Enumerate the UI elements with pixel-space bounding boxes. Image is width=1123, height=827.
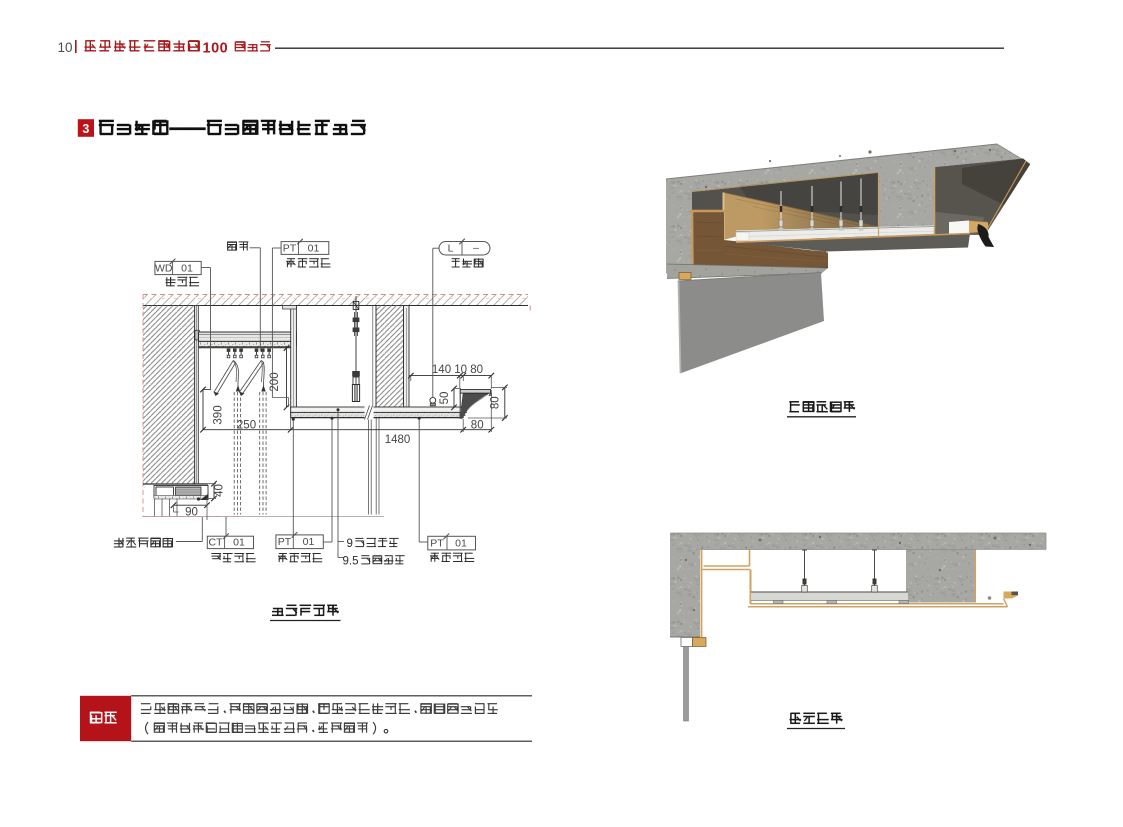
svg-text:CT: CT	[209, 537, 224, 549]
svg-text:250: 250	[237, 419, 256, 431]
svg-text:50: 50	[439, 392, 451, 405]
svg-text:PT: PT	[430, 538, 444, 550]
svg-text:01: 01	[303, 536, 315, 548]
svg-text:80: 80	[489, 396, 501, 409]
svg-text:140 10 80: 140 10 80	[432, 364, 483, 376]
svg-text:PT: PT	[278, 536, 292, 548]
svg-text:40: 40	[214, 484, 226, 497]
svg-text:01: 01	[181, 262, 193, 274]
svg-text:WD: WD	[155, 262, 173, 274]
svg-text:9: 9	[347, 538, 353, 550]
svg-text:9.5: 9.5	[343, 555, 359, 567]
svg-text:3: 3	[82, 122, 89, 136]
svg-text:01: 01	[455, 538, 467, 550]
svg-text:01: 01	[233, 537, 245, 549]
svg-text:100: 100	[203, 41, 229, 57]
svg-text:390: 390	[213, 405, 225, 424]
svg-text:200: 200	[269, 372, 281, 391]
svg-text:L: L	[448, 243, 454, 255]
svg-text:80: 80	[471, 419, 484, 431]
svg-text:01: 01	[308, 242, 320, 254]
svg-text:PT: PT	[283, 242, 297, 254]
svg-text:90: 90	[185, 507, 198, 519]
svg-text:–: –	[473, 242, 479, 254]
svg-text:10: 10	[58, 40, 73, 55]
svg-text:1480: 1480	[385, 434, 411, 446]
